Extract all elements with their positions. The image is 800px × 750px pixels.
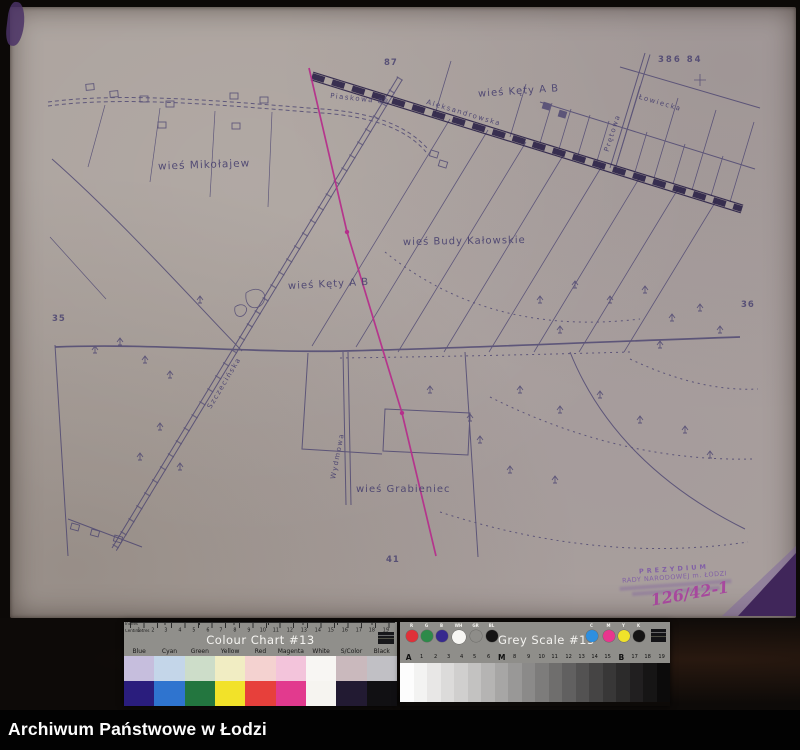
village-label-kety-central: wieś Kęty A B <box>288 277 370 292</box>
grey-step <box>414 663 428 702</box>
grey-step <box>657 663 671 702</box>
index-label: 1 <box>416 654 427 662</box>
index-label: 15 <box>602 654 613 662</box>
colour-name: Green <box>185 648 215 655</box>
swatch-pale <box>185 656 215 681</box>
colour-dot-grey: GR <box>468 624 483 642</box>
index-label: 4 <box>456 654 467 662</box>
swatch-saturated <box>245 681 275 706</box>
colour-dot-key: K <box>631 624 646 642</box>
colour-name: Blue <box>124 648 154 655</box>
grey-step-strip <box>400 663 670 702</box>
grey-step <box>562 663 576 702</box>
index-label: 6 <box>483 654 494 662</box>
colour-name: Magenta <box>276 648 306 655</box>
colour-dot-cyan: C <box>584 624 599 642</box>
sheet-mark-bottom: 41 <box>386 555 400 565</box>
index-label: 8 <box>509 654 520 662</box>
colour-dot-white: WH <box>451 624 466 644</box>
grey-step <box>508 663 522 702</box>
swatch-pale <box>154 656 184 681</box>
colour-dot-green: G <box>419 624 434 642</box>
colour-name: Yellow <box>215 648 245 655</box>
swatch-saturated <box>276 681 306 706</box>
grey-step <box>589 663 603 702</box>
grey-step <box>400 663 414 702</box>
index-label: 12 <box>563 654 574 662</box>
dot-label: B <box>436 625 448 629</box>
colour-name: Black <box>367 648 397 655</box>
sheet-mark-left: 35 <box>52 314 66 324</box>
colour-dot-blue: B <box>434 624 449 642</box>
swatch-pale <box>336 656 366 681</box>
index-label: 18 <box>642 654 653 662</box>
grey-index-row: A 1 2 3 4 5 6 M 8 9 10 11 12 13 14 15 B <box>402 653 668 662</box>
street-label-aleksandrowska: Aleksandrowska <box>425 98 502 128</box>
grey-step <box>468 663 482 702</box>
index-label: 17 <box>629 654 640 662</box>
grey-step <box>643 663 657 702</box>
archive-bar: Archiwum Państwowe w Łodzi <box>0 710 800 750</box>
dot-label: GR <box>470 625 482 629</box>
map-labels: wieś Mikołajew wieś Kęty A B wieś Budy K… <box>10 7 796 618</box>
village-label-grabieniec: wieś Grabieniec <box>356 484 451 495</box>
manufacturer-logo-patch <box>651 629 666 642</box>
index-label: 10 <box>536 654 547 662</box>
swatch-saturated <box>336 681 366 706</box>
dot-label: R <box>406 625 418 629</box>
colour-names-row: Blue Cyan Green Yellow Red Magenta White… <box>124 648 397 655</box>
colour-dot-red: R <box>404 624 419 642</box>
grey-scale-header: R G B WH GR BL Grey Scale #13 C M Y K A … <box>400 622 670 663</box>
index-label: B <box>615 653 628 662</box>
map-sheet: wieś Mikołajew wieś Kęty A B wieś Budy K… <box>10 7 796 618</box>
grey-step <box>535 663 549 702</box>
dot-label: K <box>633 625 645 629</box>
swatch-saturated <box>306 681 336 706</box>
swatch-saturated <box>124 681 154 706</box>
dot-label: G <box>421 625 433 629</box>
village-label-budy-kalowskie: wieś Budy Kałowskie <box>403 235 526 248</box>
grey-step <box>616 663 630 702</box>
swatch-saturated <box>185 681 215 706</box>
archive-title: Archiwum Państwowe w Łodzi <box>8 719 267 740</box>
colour-name: Cyan <box>154 648 184 655</box>
colour-chart-title: Colour Chart #13 <box>124 633 397 647</box>
sheet-mark-top-right: 386 84 <box>658 55 703 65</box>
saturated-swatch-row <box>124 681 397 706</box>
index-label: 11 <box>549 654 560 662</box>
village-label-kety-north: wieś Kęty A B <box>478 83 560 100</box>
grey-step <box>495 663 509 702</box>
index-label: 3 <box>443 654 454 662</box>
colour-chart-header: Inches Centimetres 1 2 3 4 5 6 7 8 9 10 … <box>124 622 397 656</box>
pale-swatch-row <box>124 656 397 681</box>
index-label: 19 <box>656 654 667 662</box>
street-label-szczecinska: Szczecińska <box>206 356 243 410</box>
colour-dot-magenta: M <box>601 624 616 642</box>
colour-name: White <box>306 648 336 655</box>
swatch-pale <box>124 656 154 681</box>
village-label-mikolajew: wieś Mikołajew <box>158 157 251 172</box>
grey-step <box>576 663 590 702</box>
street-label-pretowa: Prętowa <box>603 113 623 152</box>
sheet-mark-top: 87 <box>384 58 398 68</box>
swatch-pale <box>276 656 306 681</box>
swatch-pale <box>306 656 336 681</box>
index-label: 13 <box>576 654 587 662</box>
colour-dot-yellow: Y <box>616 624 631 642</box>
grey-step <box>427 663 441 702</box>
grey-scale-title: Grey Scale #13 <box>498 633 595 647</box>
swatch-saturated <box>215 681 245 706</box>
manufacturer-logo-patch <box>378 632 394 644</box>
grey-step <box>522 663 536 702</box>
swatch-saturated <box>367 681 397 706</box>
sheet-mark-right: 36 <box>741 300 755 310</box>
swatch-pale <box>215 656 245 681</box>
grey-step <box>549 663 563 702</box>
index-label: 2 <box>430 654 441 662</box>
index-label: A <box>402 653 415 662</box>
dot-label: BL <box>486 625 498 629</box>
swatch-saturated <box>154 681 184 706</box>
dot-label: WH <box>453 625 465 629</box>
ruler-inch-ticks <box>130 622 395 625</box>
dot-label: Y <box>618 625 630 629</box>
index-label: 5 <box>469 654 480 662</box>
grey-step <box>481 663 495 702</box>
index-label: M <box>495 653 508 662</box>
street-label-lowiecka: Łowiecka <box>638 93 683 113</box>
scanned-archive-image: wieś Mikołajew wieś Kęty A B wieś Budy K… <box>0 0 800 750</box>
grey-step <box>603 663 617 702</box>
grey-scale-chart: R G B WH GR BL Grey Scale #13 C M Y K A … <box>400 622 670 706</box>
street-label-piaskowa: Piaskowa 88 <box>330 92 390 106</box>
dot-label: C <box>586 625 598 629</box>
grey-step <box>630 663 644 702</box>
swatch-pale <box>245 656 275 681</box>
colour-name: Red <box>245 648 275 655</box>
grey-step <box>441 663 455 702</box>
colour-dot-black: BL <box>484 624 499 642</box>
colour-name: S/Color <box>336 648 366 655</box>
swatch-pale <box>367 656 397 681</box>
grey-step <box>454 663 468 702</box>
index-label: 14 <box>589 654 600 662</box>
colour-chart: Inches Centimetres 1 2 3 4 5 6 7 8 9 10 … <box>124 622 397 706</box>
calibration-strip: Inches Centimetres 1 2 3 4 5 6 7 8 9 10 … <box>0 618 800 710</box>
dot-label: M <box>603 625 615 629</box>
index-label: 9 <box>523 654 534 662</box>
street-label-wydmowa: Wydmowa <box>329 432 346 480</box>
